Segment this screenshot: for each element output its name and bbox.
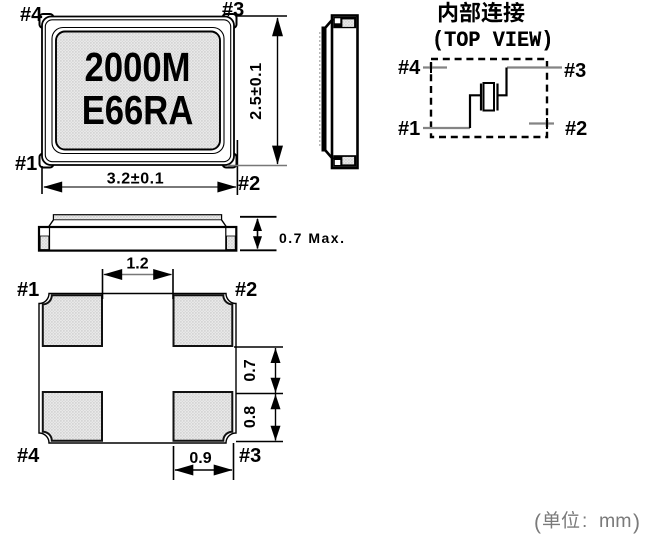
svg-text:#4: #4 — [17, 445, 40, 467]
svg-text:1.2: 1.2 — [126, 256, 148, 273]
svg-text:#1: #1 — [15, 153, 37, 175]
svg-text:3.2±0.1: 3.2±0.1 — [107, 171, 164, 188]
svg-text:0.7: 0.7 — [242, 359, 259, 381]
svg-text:#4: #4 — [20, 4, 43, 26]
svg-text:#3: #3 — [222, 0, 244, 21]
svg-text:2000M: 2000M — [85, 45, 191, 90]
svg-text:0.9: 0.9 — [189, 450, 211, 467]
svg-text:): ) — [633, 511, 640, 534]
svg-text:#1: #1 — [17, 279, 39, 301]
svg-text:#3: #3 — [239, 445, 261, 467]
svg-text::: : — [582, 511, 587, 532]
svg-text:(: ( — [534, 511, 541, 534]
svg-text:2.5±0.1: 2.5±0.1 — [248, 62, 265, 119]
svg-text:#1: #1 — [398, 118, 420, 140]
svg-text:#3: #3 — [564, 60, 586, 82]
svg-text:0.7 Max.: 0.7 Max. — [279, 230, 345, 246]
svg-text:#2: #2 — [235, 279, 257, 301]
svg-text:#2: #2 — [238, 173, 260, 195]
svg-text:(TOP VIEW): (TOP VIEW) — [432, 28, 553, 53]
svg-text:#2: #2 — [565, 118, 587, 140]
svg-text:#4: #4 — [398, 57, 421, 79]
svg-text:E66RA: E66RA — [82, 88, 194, 133]
svg-text:mm: mm — [599, 510, 632, 532]
svg-text:0.8: 0.8 — [242, 406, 259, 428]
